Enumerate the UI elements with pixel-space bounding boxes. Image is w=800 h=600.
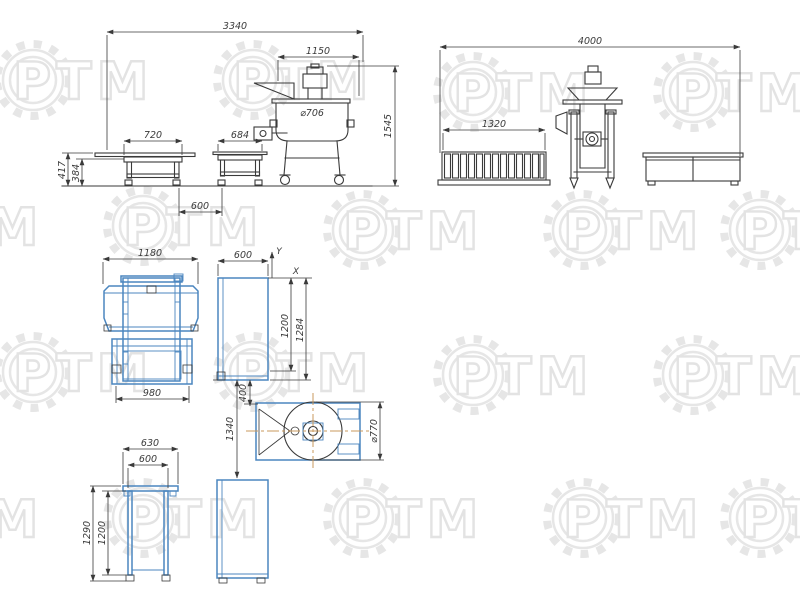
caster-wheel bbox=[281, 176, 290, 185]
side-motor bbox=[254, 127, 272, 140]
dim-plan-stand-width: 600 bbox=[234, 250, 252, 261]
front-elevation-view: 3340 1150 ⌀706 1545 720 684 600 bbox=[57, 21, 399, 216]
dim-stand-inner-height: 1200 bbox=[97, 521, 108, 545]
dim-plan-span: 1340 bbox=[225, 417, 236, 441]
table-2-front bbox=[213, 152, 267, 185]
dim-mixer-diameter: ⌀706 bbox=[300, 108, 324, 119]
dim-plan-gap: 400 bbox=[238, 384, 249, 402]
dim-plan-tables-width: 1180 bbox=[138, 248, 162, 259]
roller-conveyor-side bbox=[438, 152, 550, 185]
pointed-foot bbox=[606, 178, 614, 188]
table-side bbox=[643, 153, 743, 185]
dim-plan-stand-height: 1200 bbox=[280, 314, 291, 338]
dim-front-machine-width: 1150 bbox=[306, 46, 330, 57]
dim-plan-stand-overall-height: 1284 bbox=[295, 318, 306, 342]
dim-stand-inner-width: 600 bbox=[139, 454, 157, 465]
axis-x-label: X bbox=[292, 267, 300, 277]
technical-drawing: РТМ bbox=[0, 0, 800, 600]
dim-table1-width: 720 bbox=[144, 130, 162, 141]
table-1-plan bbox=[104, 286, 198, 331]
dim-table-height: 384 bbox=[71, 164, 82, 182]
dim-side-overall-width: 4000 bbox=[578, 36, 602, 47]
table-1-front bbox=[124, 157, 182, 185]
watermark-layer bbox=[0, 44, 800, 554]
pointed-foot bbox=[570, 178, 578, 188]
dim-front-machine-height: 1545 bbox=[383, 114, 394, 138]
dim-plan-tables-inner-width: 980 bbox=[143, 388, 161, 399]
dim-stand-outer-height: 1290 bbox=[82, 521, 93, 545]
dim-conveyor-width: 1320 bbox=[482, 119, 506, 130]
caster-wheel bbox=[335, 176, 344, 185]
dim-rotor-diameter: ⌀770 bbox=[369, 419, 380, 443]
dim-front-overall-width: 3340 bbox=[223, 21, 247, 32]
belt-conveyor-front bbox=[95, 153, 195, 157]
dim-tables-gap: 600 bbox=[191, 201, 209, 212]
dim-stand-outer-width: 630 bbox=[141, 438, 159, 449]
mixer-machine-plan bbox=[246, 393, 372, 471]
drawing-canvas: РТМ bbox=[0, 0, 800, 600]
axis-y-label: Y bbox=[276, 247, 283, 257]
dim-belt-height: 417 bbox=[57, 161, 68, 179]
dim-table2-width: 684 bbox=[231, 130, 249, 141]
